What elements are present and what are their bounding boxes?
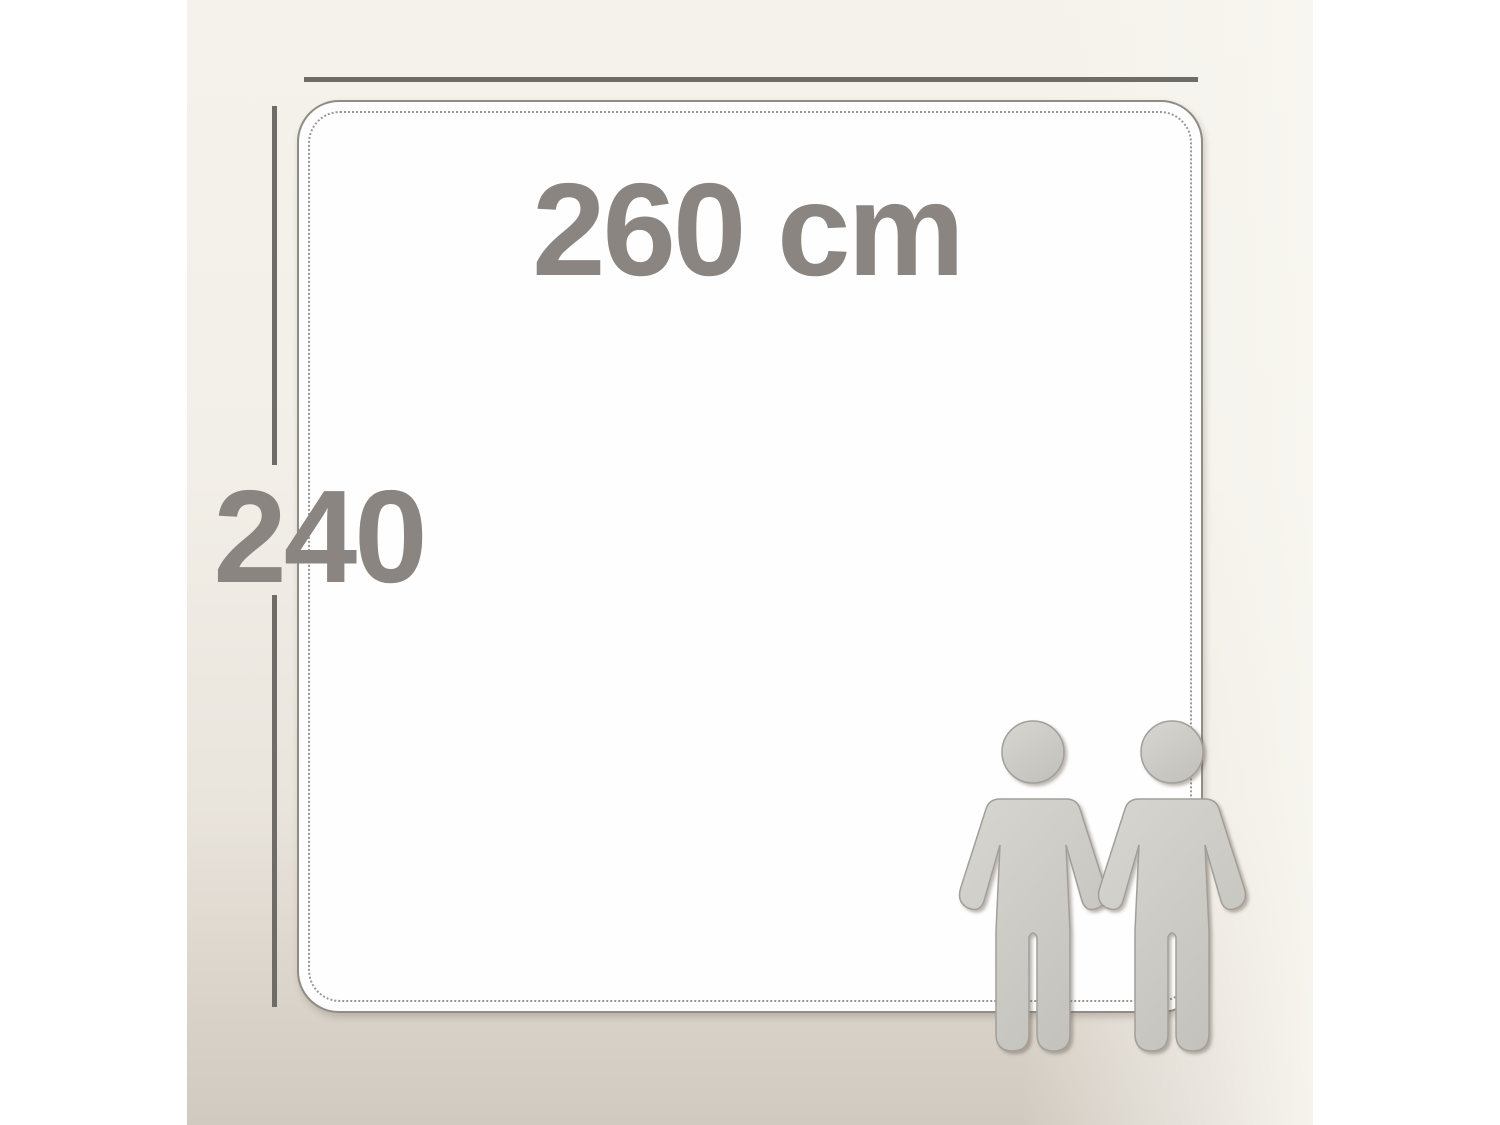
human-scale-figures [922,715,1302,1060]
height-dimension-line-lower [272,595,277,1007]
width-dimension-line [304,77,1198,82]
height-dimension-line-upper [272,106,277,465]
product-dimension-screenshot: 260 cm 240 [0,0,1500,1125]
diagram-scene: 260 cm 240 [187,0,1313,1125]
height-dimension-label: 240 [209,471,429,603]
person-icon-right [1099,721,1246,1051]
person-icon-left [960,721,1107,1051]
width-dimension-label: 260 cm [397,164,1097,296]
